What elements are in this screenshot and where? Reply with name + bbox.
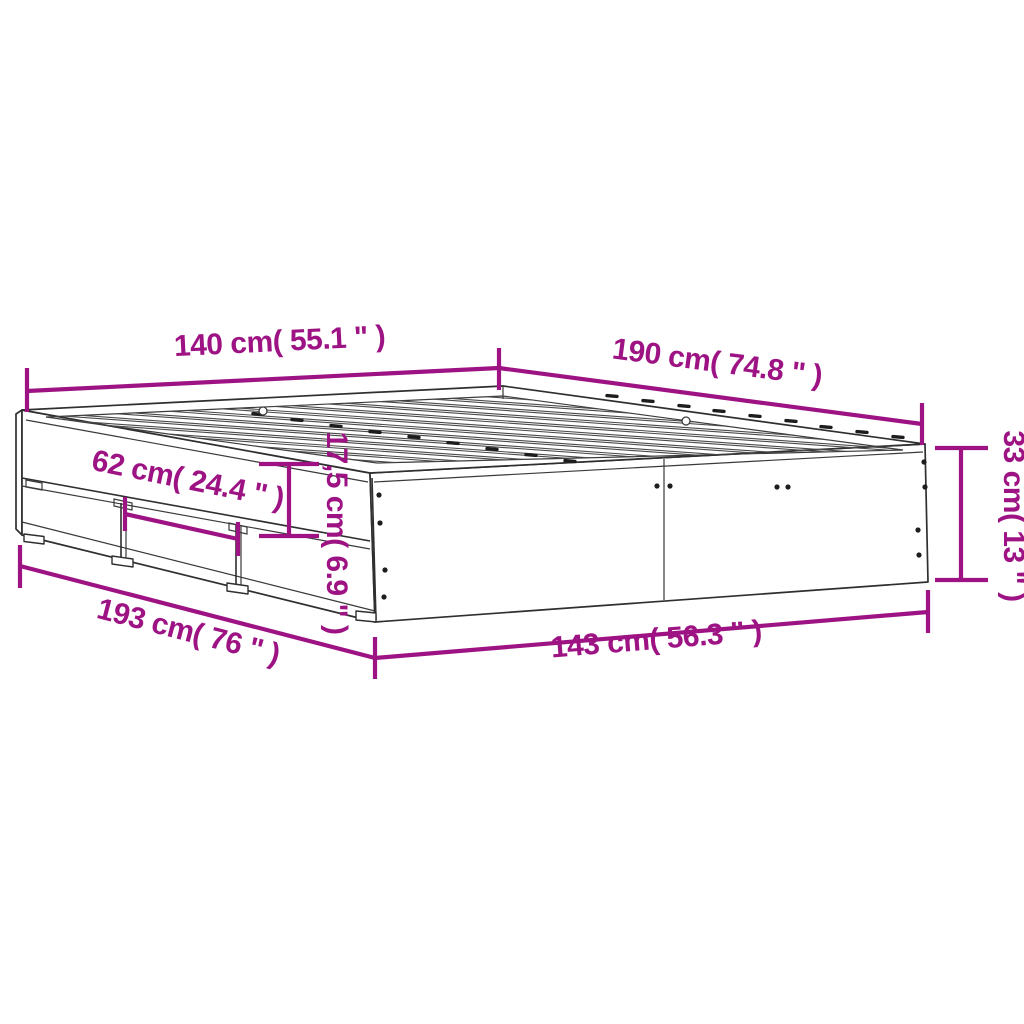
screw-dot — [382, 567, 387, 572]
label-top-length: 190 cm( 74.8 " ) — [610, 332, 824, 392]
dimension-line — [27, 368, 499, 391]
dimension-side-height — [935, 448, 988, 580]
screw-dot — [376, 492, 381, 497]
label-top-width: 140 cm( 55.1 " ) — [173, 320, 386, 363]
screw-dot — [774, 484, 779, 489]
label-side-height: 33 cm( 13 " ) — [997, 430, 1024, 601]
screw-dot — [377, 520, 382, 525]
screw-dot — [922, 484, 927, 489]
label-rail-height: 17,5 cm( 6.9 " ) — [320, 432, 353, 635]
bed-frame-drawing — [16, 363, 930, 622]
foot-panel-face — [370, 444, 928, 622]
screw-dot — [915, 527, 920, 532]
foot-block-1 — [24, 534, 44, 544]
screw-dot — [921, 459, 926, 464]
bed-frame-dimension-diagram: 140 cm( 55.1 " ) 190 cm( 74.8 " ) 33 cm(… — [0, 0, 1024, 1024]
rim-screw-hole-right — [682, 417, 690, 425]
screw-dot — [916, 552, 921, 557]
screw-dot — [785, 484, 790, 489]
label-bottom-width: 143 cm( 56.3 " ) — [550, 615, 763, 665]
headboard-edge-sliver — [16, 410, 22, 535]
screw-dot — [654, 483, 659, 488]
screw-dot — [381, 594, 386, 599]
foot-block-4 — [356, 611, 376, 622]
rim-screw-hole-left — [259, 407, 267, 415]
screw-dot — [667, 483, 672, 488]
label-bottom-length: 193 cm( 76 " ) — [94, 592, 284, 671]
dimension-diagram-canvas: 140 cm( 55.1 " ) 190 cm( 74.8 " ) 33 cm(… — [0, 0, 1024, 1024]
